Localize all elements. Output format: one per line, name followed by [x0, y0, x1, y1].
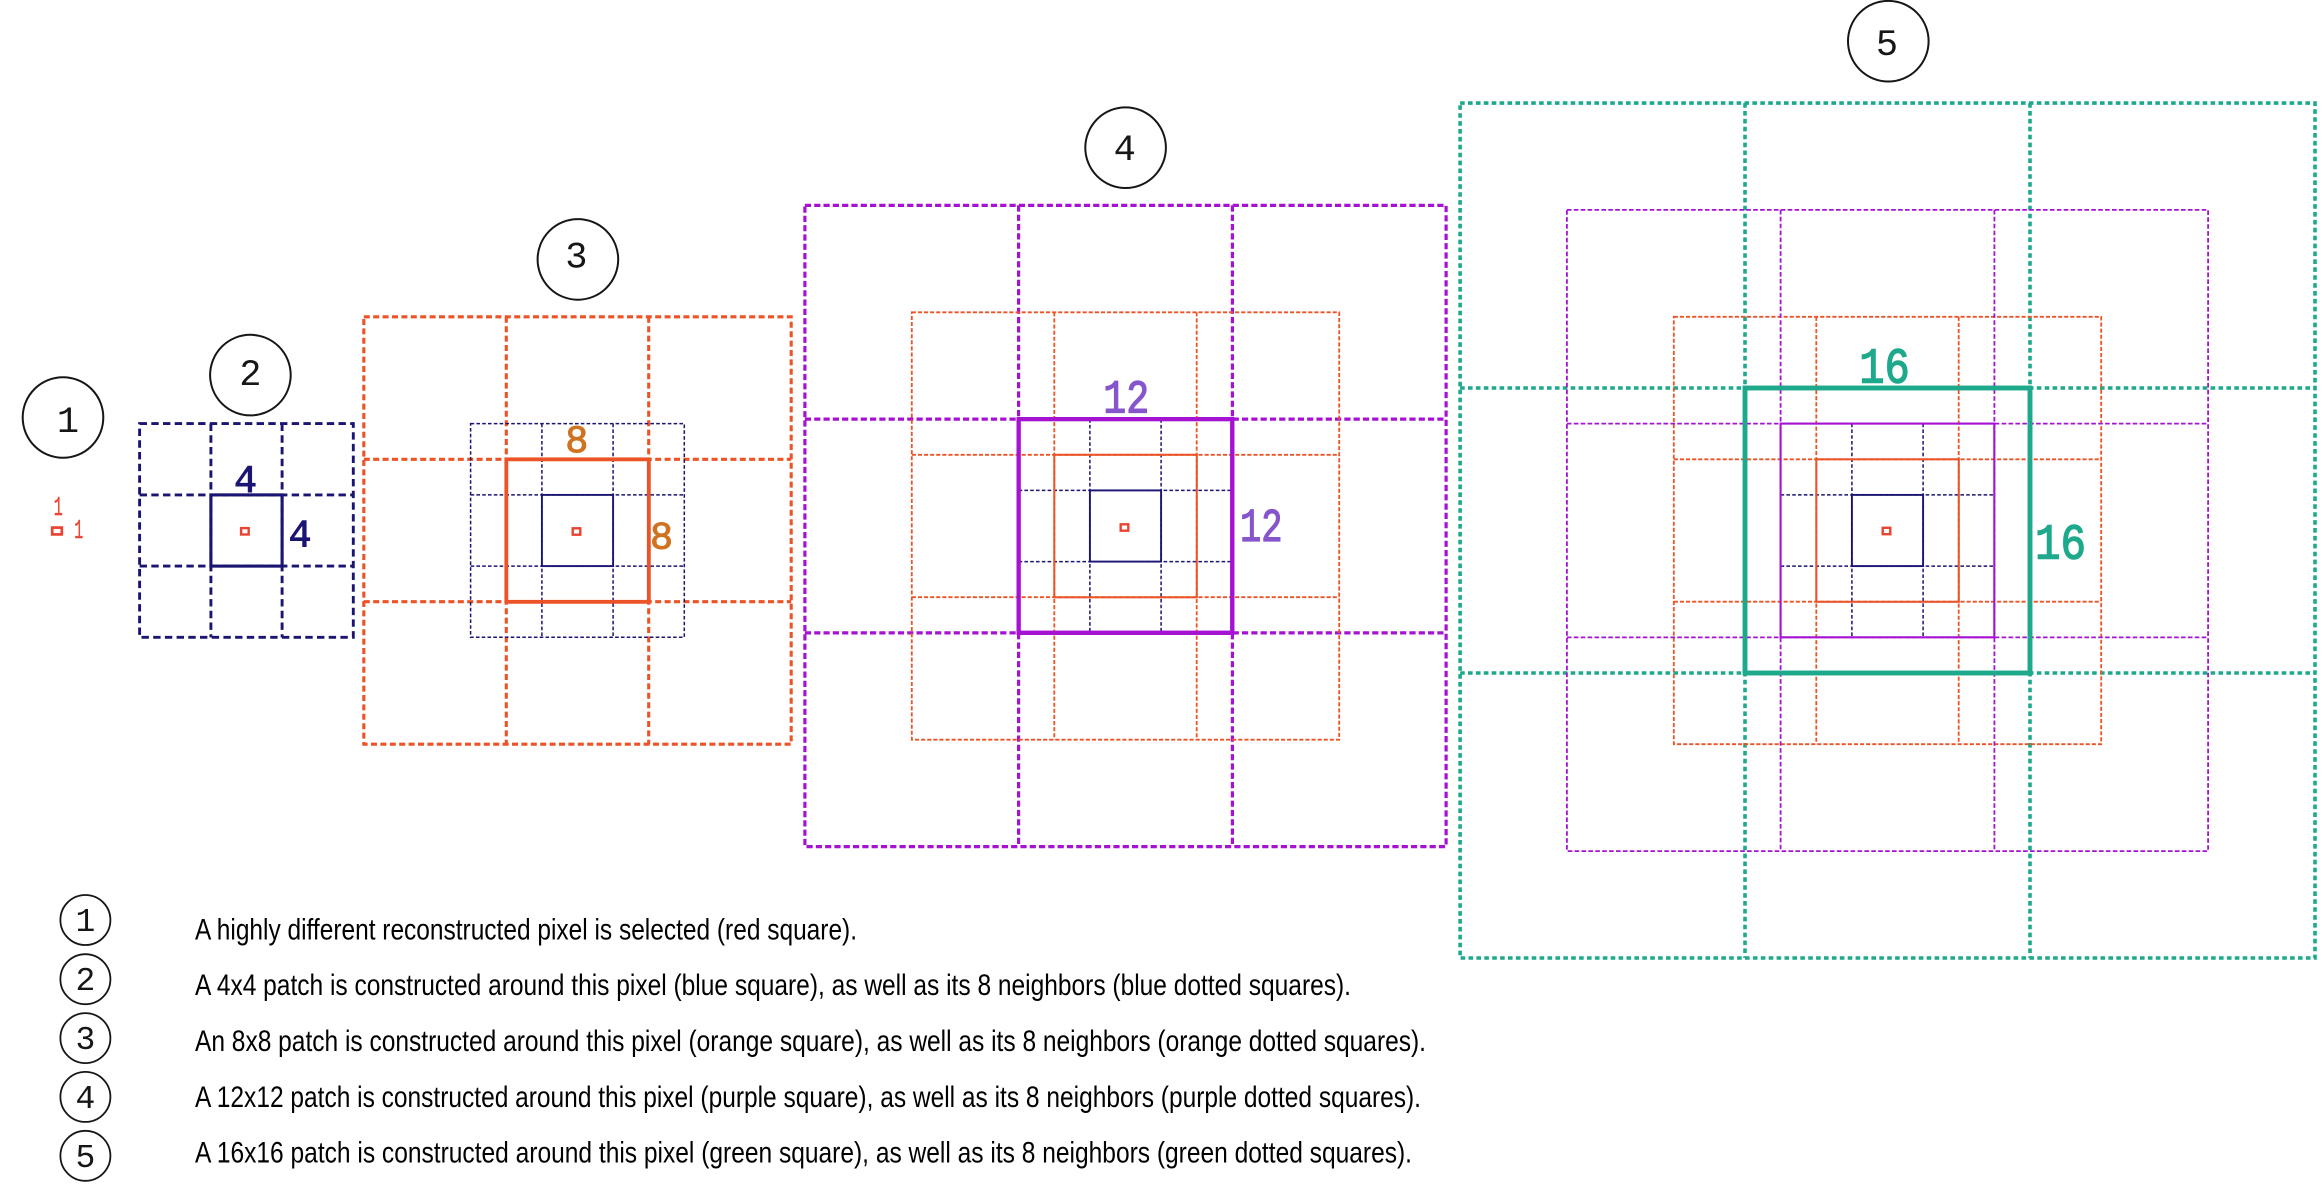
svg-text:4: 4: [1114, 130, 1136, 172]
svg-text:1: 1: [54, 494, 63, 524]
svg-text:3: 3: [75, 1022, 95, 1059]
svg-text:1: 1: [57, 402, 79, 444]
svg-text:12: 12: [1103, 375, 1149, 428]
svg-text:5: 5: [1876, 25, 1898, 67]
svg-text:1: 1: [74, 517, 83, 547]
svg-text:A 12x12 patch is constructed a: A 12x12 patch is constructed around this…: [195, 1081, 1421, 1114]
svg-text:4: 4: [289, 514, 312, 558]
svg-text:2: 2: [75, 963, 95, 1000]
svg-text:12: 12: [1240, 503, 1283, 556]
svg-text:1: 1: [75, 904, 95, 941]
svg-text:16: 16: [2035, 518, 2086, 575]
svg-text:A highly different reconstruct: A highly different reconstructed pixel i…: [195, 913, 857, 946]
svg-text:A 16x16 patch is constructed a: A 16x16 patch is constructed around this…: [195, 1137, 1412, 1170]
svg-text:3: 3: [565, 237, 587, 279]
svg-text:A 4x4 patch is constructed aro: A 4x4 patch is constructed around this p…: [195, 969, 1351, 1002]
svg-text:An 8x8 patch is constructed ar: An 8x8 patch is constructed around this …: [195, 1025, 1426, 1058]
svg-text:8: 8: [565, 420, 588, 464]
svg-text:16: 16: [1859, 341, 1910, 398]
svg-text:4: 4: [75, 1081, 95, 1118]
svg-text:4: 4: [234, 460, 257, 504]
svg-text:5: 5: [75, 1140, 95, 1177]
svg-text:8: 8: [650, 517, 673, 561]
svg-text:2: 2: [239, 355, 261, 397]
